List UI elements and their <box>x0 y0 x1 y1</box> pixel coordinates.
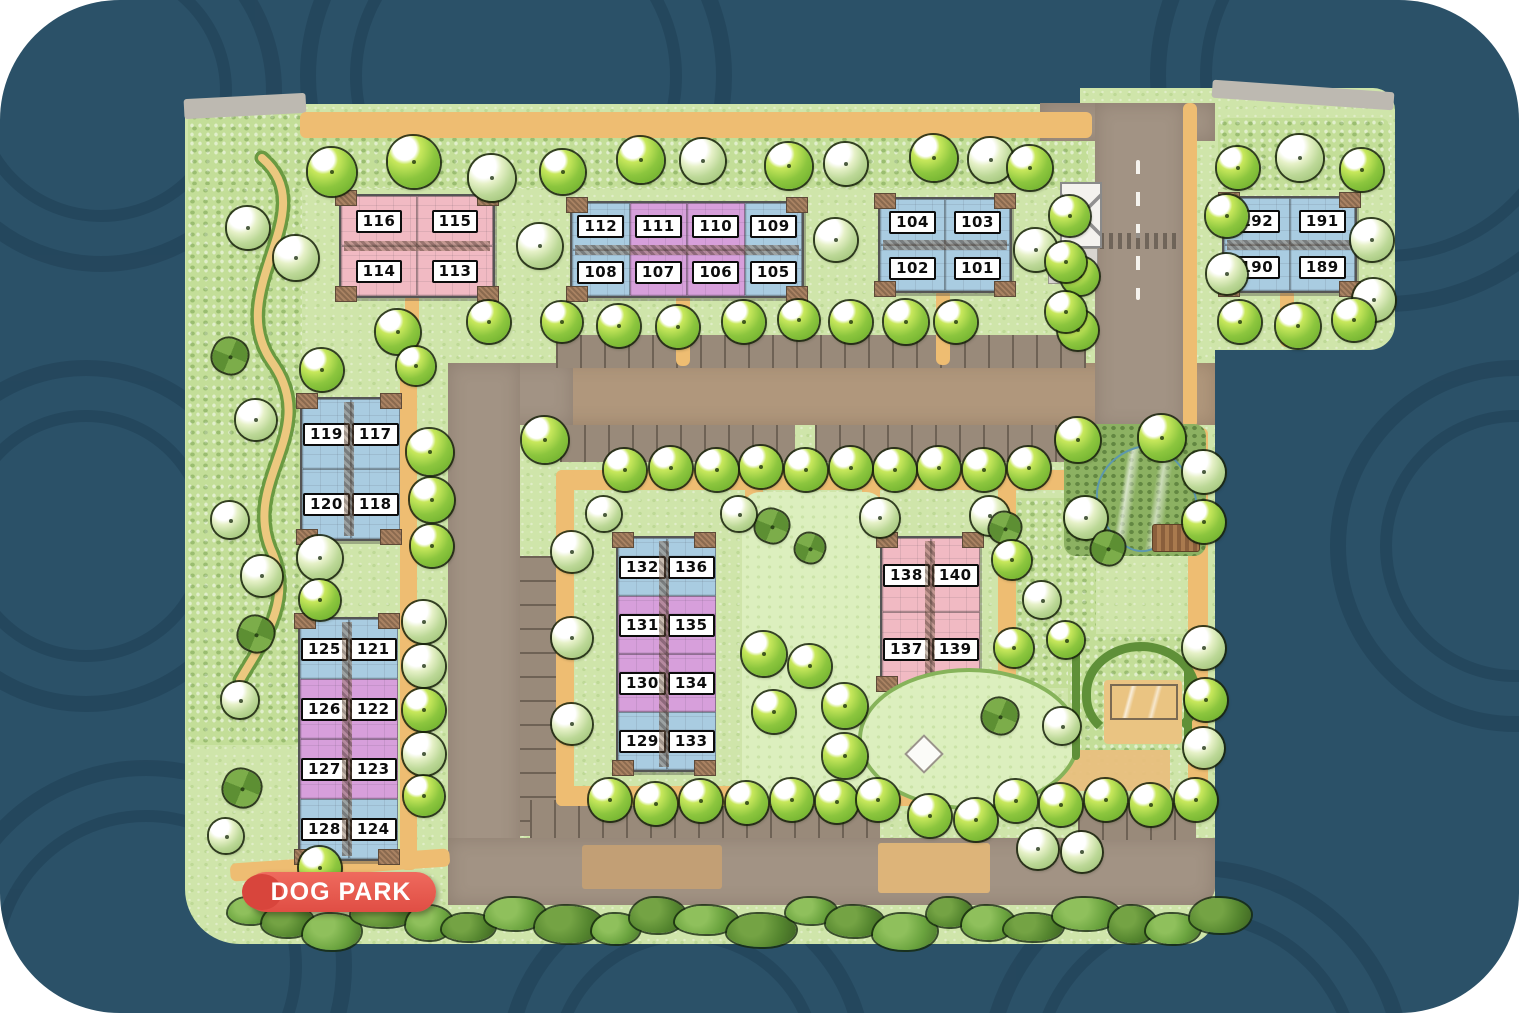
unit-number-label[interactable]: 191 <box>1299 210 1346 233</box>
building-units-101-104: 104103102101 <box>878 197 1012 293</box>
building-walkway <box>676 294 690 366</box>
unit-cell: 138 <box>882 538 931 612</box>
building-units-105-112: 112111110109108107106105 <box>570 201 804 298</box>
walkway-path <box>556 470 574 806</box>
unit-number-label[interactable]: 134 <box>668 672 715 695</box>
unit-number-label[interactable]: 131 <box>619 614 666 637</box>
patio-pad <box>1218 281 1240 297</box>
patio-pad <box>874 193 896 209</box>
planting-bed <box>1218 118 1390 190</box>
parking-stalls <box>556 335 1086 368</box>
unit-number-label[interactable]: 130 <box>619 672 666 695</box>
patio-pad <box>1218 192 1240 208</box>
crosswalk <box>1100 233 1180 249</box>
background-canvas: 116115114113 112111110109108107106105 10… <box>0 0 1519 1013</box>
unit-number-label[interactable]: 103 <box>954 211 1001 234</box>
unit-number-label[interactable]: 136 <box>668 556 715 579</box>
unit-number-label[interactable]: 190 <box>1233 256 1280 279</box>
pool-water <box>1110 684 1178 720</box>
parking-stalls <box>520 556 556 836</box>
unit-number-label[interactable]: 128 <box>301 818 348 841</box>
south-road <box>448 838 1215 905</box>
garage-structure <box>1060 182 1102 248</box>
unit-cell: 123 <box>349 739 398 799</box>
unit-cell: 134 <box>667 654 716 712</box>
unit-number-label[interactable]: 192 <box>1233 210 1280 233</box>
unit-cell: 140 <box>931 538 980 612</box>
unit-cell: 122 <box>349 679 398 739</box>
unit-cell: 110 <box>687 203 745 250</box>
unit-number-label[interactable]: 116 <box>356 210 403 233</box>
unit-number-label[interactable]: 124 <box>350 818 397 841</box>
unit-number-label[interactable]: 106 <box>692 261 739 284</box>
patio-pad <box>378 849 400 865</box>
unit-cell: 107 <box>630 250 688 297</box>
unit-cell: 135 <box>667 596 716 654</box>
walkway-path <box>300 112 1092 138</box>
patio-pad <box>994 281 1016 297</box>
unit-number-label[interactable]: 101 <box>954 257 1001 280</box>
unit-number-label[interactable]: 112 <box>577 215 624 238</box>
walkway-path <box>400 348 417 870</box>
unit-cell: 130 <box>618 654 667 712</box>
unit-number-label[interactable]: 105 <box>750 261 797 284</box>
unit-number-label[interactable]: 127 <box>301 758 348 781</box>
patio-pad <box>612 760 634 776</box>
road-center-line <box>1136 160 1140 300</box>
unit-number-label[interactable]: 111 <box>635 215 682 238</box>
hedge-row <box>1184 644 1192 760</box>
building-walkway <box>405 294 419 366</box>
patio-pad <box>1339 192 1361 208</box>
entry-drive <box>1095 103 1185 428</box>
unit-number-label[interactable]: 126 <box>301 698 348 721</box>
paver-patch <box>582 845 722 889</box>
unit-number-label[interactable]: 122 <box>350 698 397 721</box>
patio-pad <box>994 193 1016 209</box>
building-walkway <box>936 289 950 365</box>
unit-number-label[interactable]: 108 <box>577 261 624 284</box>
background-ring <box>1330 360 1519 732</box>
patio-pad <box>962 532 984 548</box>
unit-cell: 106 <box>687 250 745 297</box>
oval-lawn <box>858 668 1080 810</box>
unit-number-label[interactable]: 114 <box>356 260 403 283</box>
unit-number-label[interactable]: 118 <box>352 493 399 516</box>
unit-number-label[interactable]: 189 <box>1299 256 1346 279</box>
patio-pad <box>876 532 898 548</box>
unit-number-label[interactable]: 132 <box>619 556 666 579</box>
patio-pad <box>694 760 716 776</box>
unit-cell: 127 <box>300 739 349 799</box>
unit-number-label[interactable]: 139 <box>932 638 979 661</box>
unit-number-label[interactable]: 115 <box>432 210 479 233</box>
unit-number-label[interactable]: 140 <box>932 564 979 587</box>
building-units-129-136: 132136131135130134129133 <box>616 536 712 772</box>
west-road <box>448 363 520 905</box>
patio-pad <box>874 281 896 297</box>
building-units-113-116: 116115114113 <box>339 194 495 298</box>
unit-number-label[interactable]: 113 <box>432 260 479 283</box>
unit-number-label[interactable]: 121 <box>350 638 397 661</box>
patio-pad <box>477 190 499 206</box>
patio-pad <box>1339 281 1361 297</box>
unit-number-label[interactable]: 133 <box>668 730 715 753</box>
dog-park-label: DOG PARK <box>246 872 436 912</box>
unit-number-label[interactable]: 137 <box>883 638 930 661</box>
patio-pad <box>786 197 808 213</box>
unit-number-label[interactable]: 135 <box>668 614 715 637</box>
walking-trail <box>200 150 350 690</box>
unit-number-label[interactable]: 109 <box>750 215 797 238</box>
patio-pad <box>380 393 402 409</box>
patio-pad <box>694 532 716 548</box>
unit-number-label[interactable]: 117 <box>352 423 399 446</box>
parking-stalls <box>560 425 795 462</box>
parking-stalls <box>815 425 1085 462</box>
page: 116115114113 112111110109108107106105 10… <box>0 0 1519 1013</box>
patio-pad <box>566 197 588 213</box>
unit-number-label[interactable]: 129 <box>619 730 666 753</box>
unit-number-label[interactable]: 123 <box>350 758 397 781</box>
unit-cell: 117 <box>351 399 400 469</box>
building-units-189-192: 192191190189 <box>1222 196 1357 293</box>
parking-stalls <box>1078 803 1196 840</box>
utility-pad <box>1048 248 1098 284</box>
dog-park-text: DOG PARK <box>271 878 412 907</box>
unit-number-label[interactable]: 138 <box>883 564 930 587</box>
unit-number-label[interactable]: 110 <box>692 215 739 238</box>
patio-pad <box>786 286 808 302</box>
pond-deck <box>1152 524 1200 552</box>
patio-pad <box>294 849 316 865</box>
patio-pad <box>566 286 588 302</box>
patio-pad <box>477 286 499 302</box>
building-walkway <box>1280 289 1294 347</box>
unit-number-label[interactable]: 107 <box>635 261 682 284</box>
building-units-137-140: 138140137139 <box>880 536 980 688</box>
patio-pad <box>380 529 402 545</box>
hedge-row <box>1072 644 1080 760</box>
paver-patch <box>878 843 990 893</box>
unit-cell: 131 <box>618 596 667 654</box>
patio-pad <box>612 532 634 548</box>
unit-cell: 111 <box>630 203 688 250</box>
unit-number-label[interactable]: 104 <box>889 211 936 234</box>
patio-pad <box>378 613 400 629</box>
unit-number-label[interactable]: 102 <box>889 257 936 280</box>
walkway-path <box>1183 103 1197 428</box>
